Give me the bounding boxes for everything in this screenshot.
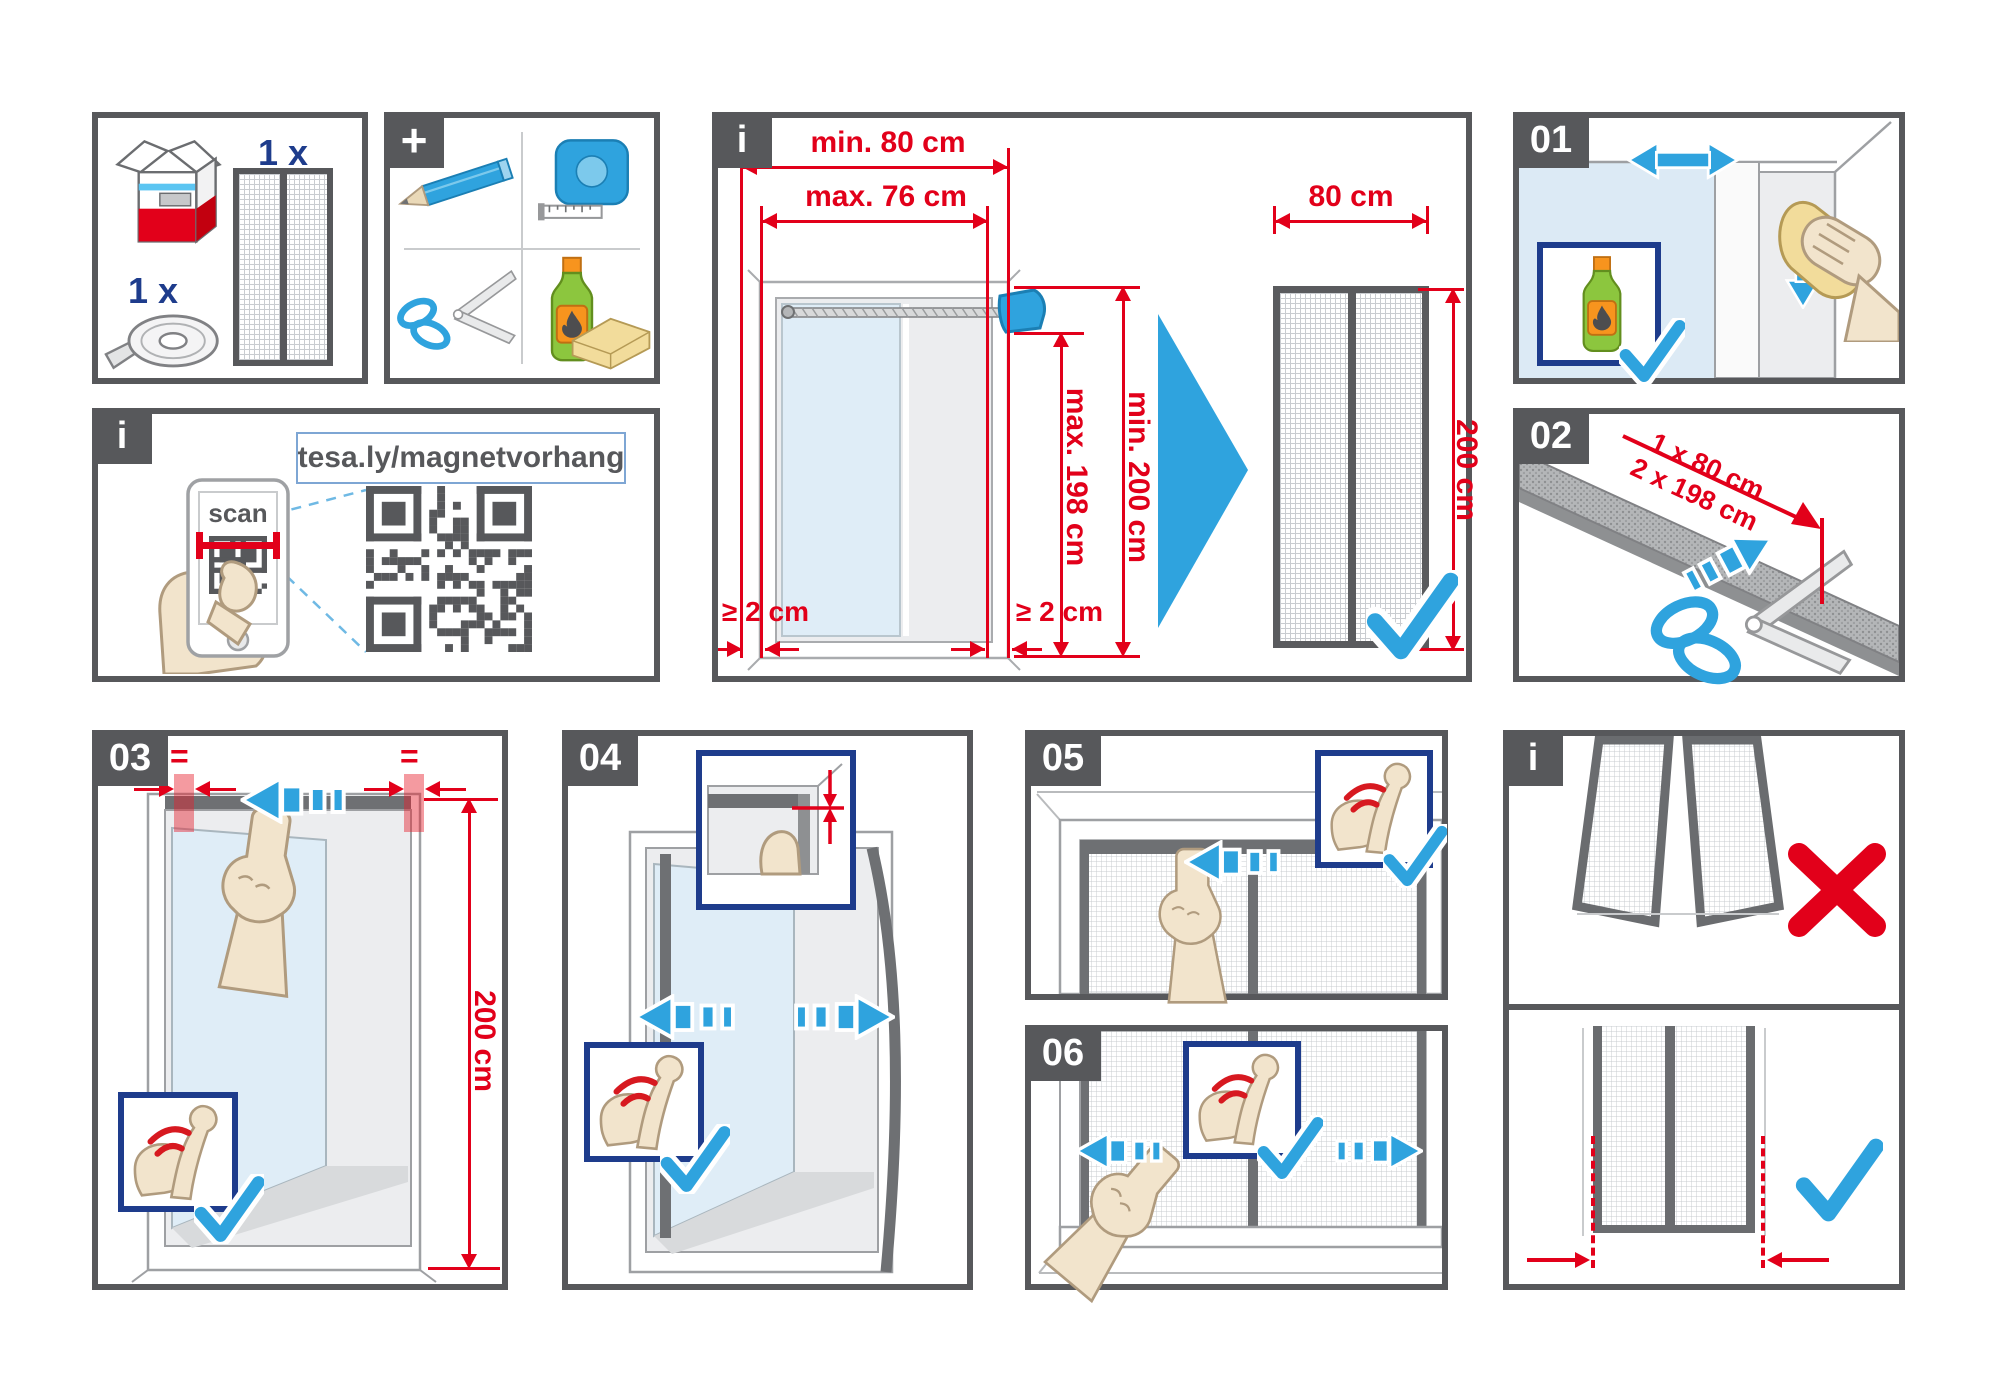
dim-curtain-height: 200 cm: [1449, 380, 1483, 560]
cleaning-hand-icon: [1775, 172, 1899, 342]
arrow-right-icon: [1323, 1131, 1423, 1171]
step-badge: 01: [1513, 112, 1589, 168]
scissors-icon: [396, 258, 518, 362]
margin-left-label: ≥ 2 cm: [722, 596, 809, 628]
step-badge: 03: [92, 730, 168, 786]
panel-step-05: 05: [1025, 730, 1448, 1000]
dim-curtain-width: 80 cm: [1278, 180, 1424, 214]
step-badge: 04: [562, 730, 638, 786]
panel-measurement-info: i min. 80 cm max. 76 cm: [712, 112, 1472, 682]
check-icon: [1257, 1115, 1323, 1181]
step-badge: 02: [1513, 408, 1589, 464]
equal-left: =: [170, 738, 189, 775]
check-icon: [1795, 1136, 1883, 1224]
smartphone-icon: scan: [158, 474, 318, 674]
check-icon: [1383, 824, 1447, 888]
info-badge: i: [92, 408, 152, 464]
scan-label: scan: [208, 498, 267, 528]
box-icon: [106, 126, 231, 251]
panel-step-04: 04: [562, 730, 973, 1290]
info-badge: i: [1503, 730, 1563, 786]
quadrant-divider-h: [404, 248, 640, 250]
tape-roll-icon: [104, 304, 224, 374]
cross-icon: [1787, 840, 1887, 940]
dim-outer-height: min. 200 cm: [1121, 387, 1155, 567]
sub-panel-divider: [1503, 1004, 1905, 1010]
info-badge: i: [712, 112, 772, 168]
arrow-left-icon: [1183, 840, 1295, 884]
check-icon: [1366, 570, 1458, 662]
plus-badge: +: [384, 112, 444, 168]
arrow-horizontal-icon: [1627, 140, 1739, 180]
arrow-left-icon: [238, 776, 363, 824]
dim-inner-width: max. 76 cm: [788, 180, 984, 214]
qr-code: [366, 486, 532, 652]
panel-step-02: 02 1 x 80 cm 2 x 198 cm: [1513, 408, 1905, 682]
panel-step-03: 03 = = 200 cm: [92, 730, 508, 1290]
dim-height: 200 cm: [467, 951, 501, 1131]
arrow-right-icon: [780, 994, 895, 1040]
curtain-correct-illustration: [1581, 1026, 1767, 1241]
step-badge: 05: [1025, 730, 1101, 786]
mesh-curtain-icon: [233, 168, 333, 366]
instruction-sheet: 1 x 1 x + i tesa.ly/magnetvorhang: [0, 0, 2000, 1388]
check-icon: [1619, 318, 1685, 384]
panel-step-01: 01: [1513, 112, 1905, 384]
panel-result-info: i: [1503, 730, 1905, 1290]
panel-additional-tools: +: [384, 112, 660, 384]
check-icon: [194, 1174, 264, 1244]
arrow-right-icon: [1158, 314, 1248, 628]
tape-measure-icon: [538, 136, 640, 228]
corner-detail-inset: [696, 750, 856, 910]
cloth-icon: [568, 310, 654, 370]
check-icon: [660, 1124, 730, 1194]
step-badge: 06: [1025, 1025, 1101, 1081]
arrow-left-icon: [634, 994, 749, 1040]
panel-step-06: 06: [1025, 1025, 1448, 1290]
equal-right: =: [400, 738, 419, 775]
dim-inner-height: max. 198 cm: [1059, 387, 1093, 567]
panel-qr-info: i tesa.ly/magnetvorhang scan: [92, 408, 660, 682]
margin-right-label: ≥ 2 cm: [1016, 596, 1103, 628]
arrow-left-icon: [1075, 1131, 1175, 1171]
dim-outer-width: min. 80 cm: [788, 126, 988, 160]
panel-box-contents: 1 x 1 x: [92, 112, 368, 384]
curtain-wrong-illustration: [1569, 736, 1789, 946]
